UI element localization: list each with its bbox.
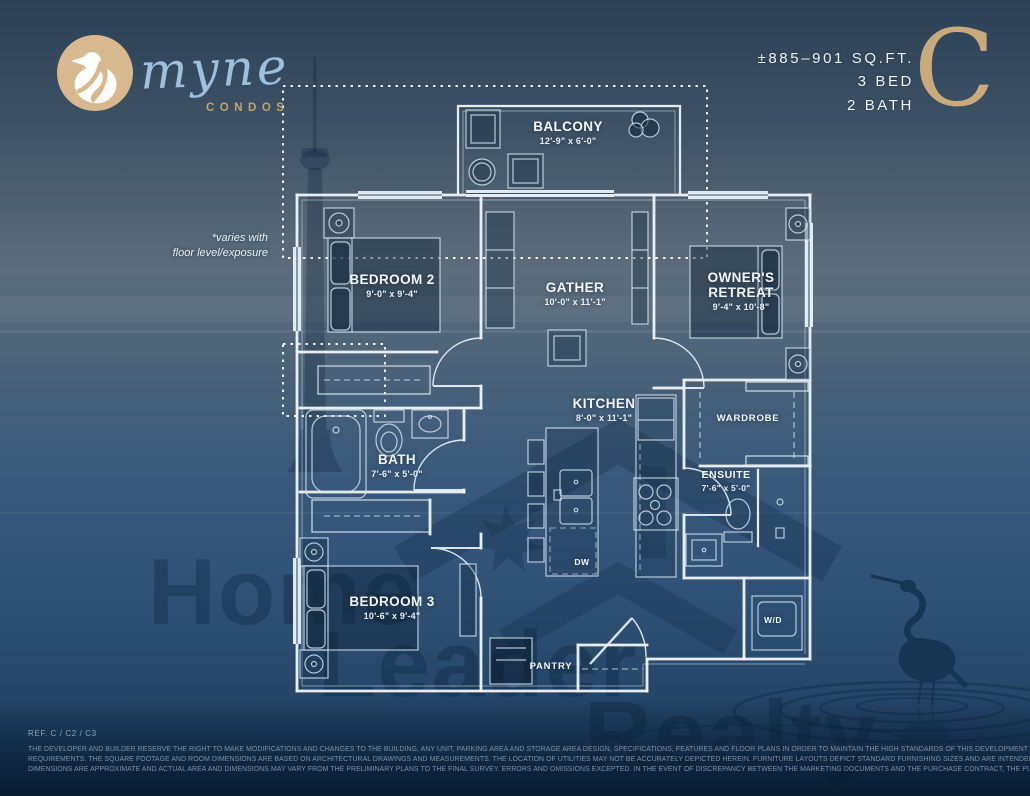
kitchen-stools (528, 440, 544, 562)
wardrobe-shelf-top (746, 382, 808, 391)
plan-letter: C (914, 16, 995, 122)
gather-armchair (548, 330, 586, 366)
balcony-table (469, 159, 495, 185)
ensuite-sink (686, 534, 722, 566)
floor-variance-note: *varies with floor level/exposure (156, 231, 268, 261)
brand-name: myne (139, 37, 290, 100)
label-dishwasher: DW (574, 558, 589, 568)
bedroom2-nightstand (324, 208, 354, 238)
brand-tagline: CONDOS (206, 102, 289, 114)
unit-area: ±885–901 SQ.FT. (758, 47, 914, 70)
label-washer-dryer: W/D (764, 616, 782, 626)
label-gather: GATHER 10'-0" x 11'-1" (544, 280, 605, 307)
entry-console (490, 638, 532, 684)
entry-door (590, 618, 646, 664)
disclaimer-line-1: THE DEVELOPER AND BUILDER RESERVE THE RI… (28, 744, 1030, 753)
floor-plan (0, 0, 1030, 796)
bathtub (306, 410, 366, 498)
unit-baths: 2 BATH (758, 94, 914, 117)
bedroom3-nightstand-bottom (300, 650, 328, 678)
label-bedroom3: BEDROOM 3 10'-6" x 9'-4" (349, 594, 434, 621)
label-pantry: PANTRY (530, 662, 573, 673)
bedroom3-nightstand-top (300, 538, 328, 566)
balcony-chair-2 (508, 154, 543, 188)
disclaimer-line-2: REQUIREMENTS. THE SQUARE FOOTAGE AND ROO… (28, 754, 1030, 763)
label-balcony: BALCONY 12'-9" x 6'-0" (533, 119, 603, 146)
disclaimer-line-3: DIMENSIONS ARE APPROXIMATE AND ACTUAL AR… (28, 764, 1030, 773)
bath-sink (412, 410, 448, 438)
balcony-chair-1 (466, 110, 500, 148)
wardrobe-shelf-bottom (746, 456, 808, 465)
label-ensuite: ENSUITE 7'-6" x 5'-0" (701, 470, 750, 493)
shower (776, 499, 784, 538)
label-wardrobe: WARDROBE (717, 414, 780, 425)
balcony-plant (629, 112, 659, 137)
gather-media-unit (632, 212, 648, 324)
brand-logo-icon (55, 33, 135, 113)
owners-nightstand-top (786, 208, 810, 240)
label-bath: BATH 7'-6" x 5'-0" (371, 452, 422, 479)
owners-nightstand-bottom (786, 348, 810, 380)
unit-info: ±885–901 SQ.FT. 3 BED 2 BATH (758, 47, 914, 117)
label-owners-retreat: OWNER'S RETREAT 9'-4" x 10'-8" (708, 270, 775, 312)
bedroom3-dresser (460, 564, 476, 636)
gather-sofa (486, 212, 514, 328)
label-kitchen: KITCHEN 8'-0" x 11'-1" (573, 396, 636, 423)
kitchen-island (546, 428, 598, 576)
plan-reference: REF. C / C2 / C3 (28, 729, 97, 738)
bedroom2-door (433, 338, 481, 386)
flyer-page: Home Leader Realty (0, 0, 1030, 796)
ensuite-toilet (724, 499, 752, 542)
label-bedroom2: BEDROOM 2 9'-0" x 9'-4" (349, 272, 434, 299)
unit-beds: 3 BED (758, 70, 914, 93)
